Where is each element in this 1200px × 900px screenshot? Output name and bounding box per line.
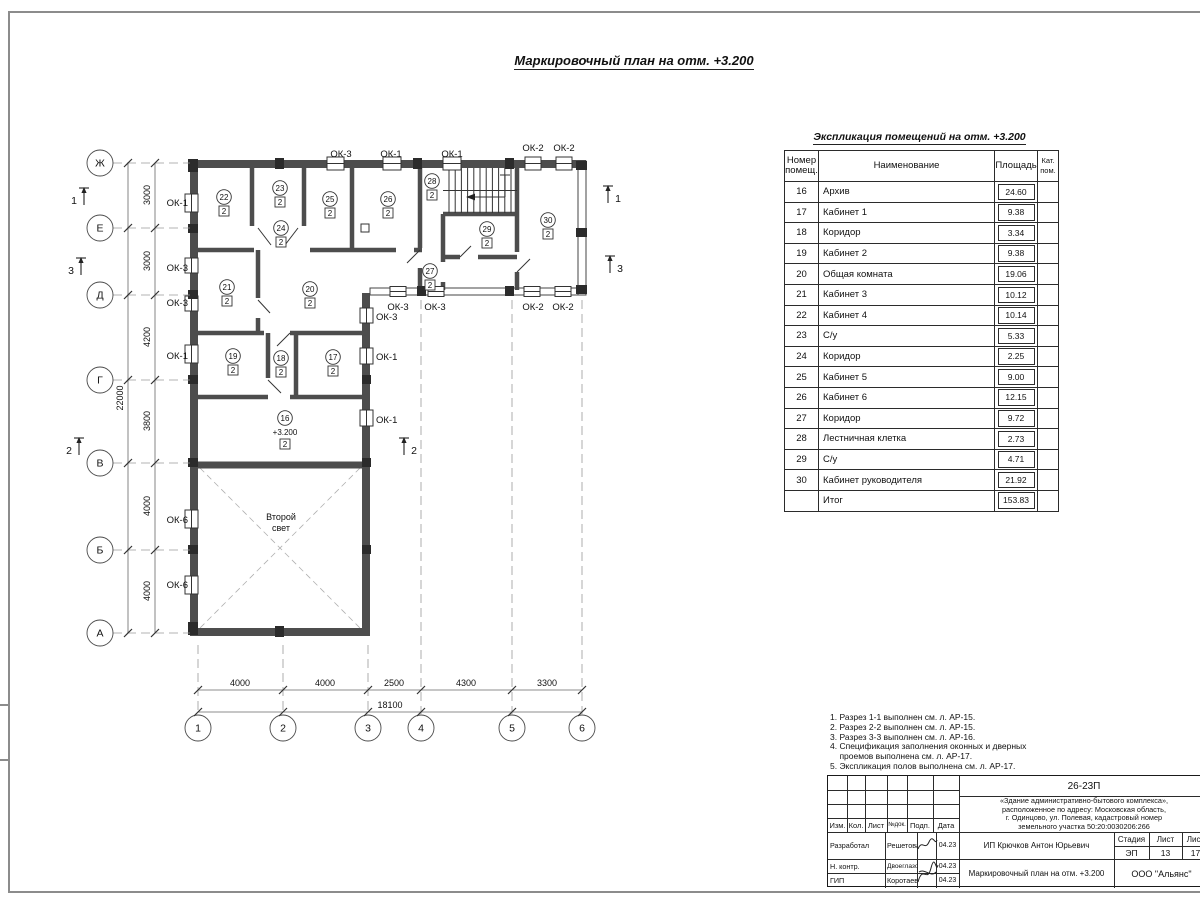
tb-sheet-label: Лист: [1149, 832, 1182, 846]
table-cell: 12.15: [995, 387, 1038, 408]
svg-text:2: 2: [280, 723, 286, 735]
svg-text:ОК-1: ОК-1: [376, 352, 397, 363]
table-cell: 2.73: [995, 429, 1038, 450]
tb-sheet-no: 13: [1149, 846, 1182, 859]
tb-client: ИП Крючков Антон Юрьевич: [959, 832, 1114, 859]
table-cell: 25: [785, 367, 819, 388]
table-cell: Кабинет 1: [819, 202, 995, 223]
svg-text:ОК-1: ОК-1: [167, 198, 188, 209]
svg-text:16: 16: [281, 414, 290, 423]
signature: [916, 836, 938, 854]
tb-project-line: земельного участка 50:20:0030206:266: [959, 823, 1200, 832]
svg-text:4000: 4000: [315, 678, 335, 688]
col-header-num: Номер помещ.: [785, 151, 819, 182]
table-cell: [1038, 223, 1059, 244]
svg-text:Е: Е: [96, 223, 103, 235]
notes-block: 1. Разрез 1-1 выполнен см. л. АР-15.2. Р…: [830, 713, 1026, 772]
svg-text:3300: 3300: [537, 678, 557, 688]
svg-text:1: 1: [71, 195, 77, 207]
svg-text:ОК-3: ОК-3: [376, 312, 397, 323]
svg-text:19: 19: [229, 352, 238, 361]
table-cell: 26: [785, 387, 819, 408]
tb-col-data: Дата: [933, 818, 959, 832]
table-cell: Кабинет руководителя: [819, 470, 995, 491]
table-cell: 9.72: [995, 408, 1038, 429]
table-row: 26Кабинет 612.15: [785, 387, 1059, 408]
table-cell: 24.60: [995, 182, 1038, 203]
tb-col-podp: Подп.: [907, 818, 933, 832]
tb-role-2: ГИП: [830, 873, 885, 888]
table-cell: [785, 490, 819, 511]
table-cell: 17: [785, 202, 819, 223]
tb-name-0: Решетова: [887, 832, 917, 859]
table-cell: С/у: [819, 326, 995, 347]
table-cell: Кабинет 4: [819, 305, 995, 326]
table-cell: [1038, 408, 1059, 429]
table-cell: 18: [785, 223, 819, 244]
table-cell: 16: [785, 182, 819, 203]
svg-text:2: 2: [430, 191, 435, 200]
table-cell: Кабинет 6: [819, 387, 995, 408]
table-row: 28Лестничная клетка2.73: [785, 429, 1059, 450]
svg-text:2: 2: [308, 299, 313, 308]
svg-text:27: 27: [426, 267, 435, 276]
svg-text:2: 2: [331, 367, 336, 376]
svg-text:2: 2: [386, 209, 391, 218]
svg-text:2: 2: [225, 297, 230, 306]
svg-text:ОК-1: ОК-1: [376, 415, 397, 426]
table-cell: 28: [785, 429, 819, 450]
table-cell: 153.83: [995, 490, 1038, 511]
svg-text:3: 3: [365, 723, 371, 735]
svg-text:ОК-1: ОК-1: [441, 149, 462, 160]
svg-text:2: 2: [279, 368, 284, 377]
explication-body: 16Архив24.6017Кабинет 19.3818Коридор3.34…: [785, 182, 1059, 512]
table-row: 21Кабинет 310.12: [785, 284, 1059, 305]
svg-text:29: 29: [483, 225, 492, 234]
svg-text:ОК-3: ОК-3: [330, 149, 351, 160]
svg-text:ОК-3: ОК-3: [167, 298, 188, 309]
svg-text:2: 2: [546, 230, 551, 239]
svg-text:18: 18: [277, 354, 286, 363]
svg-text:28: 28: [428, 177, 437, 186]
table-cell: Архив: [819, 182, 995, 203]
svg-text:А: А: [96, 628, 103, 640]
svg-text:ОК-2: ОК-2: [522, 143, 543, 154]
svg-text:2: 2: [283, 440, 288, 449]
signature: [915, 860, 939, 887]
table-cell: 10.14: [995, 305, 1038, 326]
svg-text:2: 2: [279, 238, 284, 247]
svg-text:2: 2: [231, 366, 236, 375]
tb-date-0: 04.23: [936, 832, 959, 859]
col-header-area: Площадь: [995, 151, 1038, 182]
svg-text:17: 17: [329, 353, 338, 362]
svg-text:24: 24: [277, 224, 286, 233]
plan-annotations: ЖЕДГВБА123456300030004200380040004000220…: [66, 143, 623, 741]
col-header-cat: Кат. пом.: [1038, 151, 1059, 182]
explication-title: Экспликация помещений на отм. +3.200: [784, 131, 1055, 143]
svg-text:2500: 2500: [384, 678, 404, 688]
table-cell: 4.71: [995, 449, 1038, 470]
table-cell: 9.38: [995, 243, 1038, 264]
svg-text:4: 4: [418, 723, 424, 735]
table-cell: [1038, 346, 1059, 367]
table-cell: 5.33: [995, 326, 1038, 347]
svg-text:2: 2: [485, 239, 490, 248]
table-cell: Коридор: [819, 223, 995, 244]
tb-role-0: Разработал: [830, 832, 885, 859]
tb-col-ndok: №док.: [887, 818, 907, 832]
svg-text:ОК-2: ОК-2: [553, 143, 574, 154]
svg-text:ОК-2: ОК-2: [552, 302, 573, 313]
table-cell: [1038, 182, 1059, 203]
svg-text:20: 20: [306, 285, 315, 294]
tb-role-1: Н. контр.: [830, 859, 885, 873]
table-cell: Лестничная клетка: [819, 429, 995, 450]
tb-date-1: 04.23: [936, 859, 959, 873]
svg-text:В: В: [96, 458, 103, 470]
tb-doc-number: 26-23П: [959, 776, 1200, 796]
svg-text:18100: 18100: [377, 700, 402, 710]
table-cell: 9.00: [995, 367, 1038, 388]
table-cell: [1038, 470, 1059, 491]
explication-table: Номер помещ. Наименование Площадь Кат. п…: [784, 150, 1059, 512]
table-cell: 22: [785, 305, 819, 326]
table-cell: [1038, 264, 1059, 285]
table-cell: Кабинет 3: [819, 284, 995, 305]
tb-drawing-title: Маркировочный план на отм. +3.200: [959, 859, 1114, 888]
svg-text:Г: Г: [97, 375, 103, 387]
svg-text:6: 6: [579, 723, 585, 735]
table-cell: [1038, 243, 1059, 264]
tb-col-izm: Изм.: [828, 818, 847, 832]
tb-project: «Здание административно-бытового комплек…: [959, 797, 1200, 832]
table-cell: 19: [785, 243, 819, 264]
table-cell: 9.38: [995, 202, 1038, 223]
svg-text:Д: Д: [96, 290, 103, 302]
svg-text:ОК-3: ОК-3: [424, 302, 445, 313]
svg-text:+3.200: +3.200: [273, 428, 298, 437]
table-cell: 10.12: [995, 284, 1038, 305]
svg-text:3800: 3800: [142, 411, 152, 431]
svg-text:25: 25: [326, 195, 335, 204]
table-cell: [1038, 367, 1059, 388]
col-header-name: Наименование: [819, 151, 995, 182]
table-cell: Итог: [819, 490, 995, 511]
table-cell: [1038, 202, 1059, 223]
tb-name-1: Двоеглазов: [887, 859, 917, 873]
table-cell: 2.25: [995, 346, 1038, 367]
table-row: 16Архив24.60: [785, 182, 1059, 203]
tb-stage: ЭП: [1114, 846, 1149, 859]
table-row: 22Кабинет 410.14: [785, 305, 1059, 326]
drawing-sheet: { "sheet_title": "Маркировочный план на …: [0, 0, 1200, 900]
tb-col-list: Лист: [865, 818, 887, 832]
table-cell: 23: [785, 326, 819, 347]
svg-text:4000: 4000: [142, 581, 152, 601]
table-cell: 21.92: [995, 470, 1038, 491]
explication: Номер помещ. Наименование Площадь Кат. п…: [784, 150, 1059, 512]
svg-text:4000: 4000: [142, 496, 152, 516]
table-cell: [1038, 326, 1059, 347]
table-cell: [1038, 449, 1059, 470]
table-cell: [1038, 305, 1059, 326]
table-cell: 30: [785, 470, 819, 491]
staircase: [443, 168, 517, 213]
svg-text:2: 2: [278, 198, 283, 207]
svg-text:2: 2: [428, 281, 433, 290]
svg-text:2: 2: [66, 445, 72, 457]
tb-name-2: Коротаев: [887, 873, 917, 888]
svg-text:ОК-3: ОК-3: [167, 263, 188, 274]
title-block: Изм. Кол. Лист №док. Подп. Дата Разработ…: [827, 775, 1200, 887]
table-row: 23С/у5.33: [785, 326, 1059, 347]
tb-company: ООО "Альянс": [1114, 859, 1200, 888]
svg-text:свет: свет: [272, 523, 290, 533]
svg-text:4000: 4000: [230, 678, 250, 688]
table-cell: Коридор: [819, 408, 995, 429]
table-cell: 21: [785, 284, 819, 305]
void-diagonals: [200, 468, 360, 628]
svg-text:22: 22: [220, 193, 229, 202]
walls: [188, 160, 586, 636]
table-row: 25Кабинет 59.00: [785, 367, 1059, 388]
svg-text:22000: 22000: [115, 385, 125, 410]
note-line: 5. Экспликация полов выполнена см. л. АР…: [830, 762, 1026, 772]
table-row: 17Кабинет 19.38: [785, 202, 1059, 223]
tb-sheets-label: Лист: [1182, 832, 1200, 846]
tb-sheets-total: 17: [1182, 846, 1200, 859]
table-cell: 29: [785, 449, 819, 470]
table-row: 27Коридор9.72: [785, 408, 1059, 429]
svg-text:ОК-6: ОК-6: [167, 515, 188, 526]
svg-text:Ж: Ж: [95, 158, 105, 170]
svg-text:3: 3: [617, 263, 623, 275]
svg-text:ОК-1: ОК-1: [380, 149, 401, 160]
svg-text:3000: 3000: [142, 185, 152, 205]
svg-text:26: 26: [384, 195, 393, 204]
table-cell: [1038, 284, 1059, 305]
svg-text:2: 2: [328, 209, 333, 218]
svg-text:4200: 4200: [142, 327, 152, 347]
svg-text:3000: 3000: [142, 251, 152, 271]
table-row: 18Коридор3.34: [785, 223, 1059, 244]
svg-text:30: 30: [544, 216, 553, 225]
table-cell: С/у: [819, 449, 995, 470]
table-row: 20Общая комната19.06: [785, 264, 1059, 285]
table-cell: 20: [785, 264, 819, 285]
explication-header-row: Номер помещ. Наименование Площадь Кат. п…: [785, 151, 1059, 182]
table-row: 30Кабинет руководителя21.92: [785, 470, 1059, 491]
table-cell: 24: [785, 346, 819, 367]
table-row: 24Коридор2.25: [785, 346, 1059, 367]
table-cell: [1038, 429, 1059, 450]
svg-text:23: 23: [276, 184, 285, 193]
svg-text:ОК-2: ОК-2: [522, 302, 543, 313]
svg-text:3: 3: [68, 265, 74, 277]
table-cell: 3.34: [995, 223, 1038, 244]
table-row: 19Кабинет 29.38: [785, 243, 1059, 264]
table-cell: 27: [785, 408, 819, 429]
table-cell: [1038, 387, 1059, 408]
svg-text:4300: 4300: [456, 678, 476, 688]
table-cell: [1038, 490, 1059, 511]
svg-text:21: 21: [223, 283, 232, 292]
svg-text:ОК-6: ОК-6: [167, 580, 188, 591]
svg-text:2: 2: [222, 207, 227, 216]
table-row: 29С/у4.71: [785, 449, 1059, 470]
svg-text:ОК-1: ОК-1: [167, 351, 188, 362]
table-cell: Общая комната: [819, 264, 995, 285]
table-cell: Кабинет 2: [819, 243, 995, 264]
table-row: Итог153.83: [785, 490, 1059, 511]
tb-date-2: 04.23: [936, 873, 959, 888]
table-cell: Кабинет 5: [819, 367, 995, 388]
tb-col-kol: Кол.: [847, 818, 865, 832]
table-cell: Коридор: [819, 346, 995, 367]
svg-text:1: 1: [615, 193, 621, 205]
svg-text:2: 2: [411, 445, 417, 457]
svg-text:Второй: Второй: [266, 512, 296, 522]
tb-stage-label: Стадия: [1114, 832, 1149, 846]
table-cell: 19.06: [995, 264, 1038, 285]
svg-text:1: 1: [195, 723, 201, 735]
svg-text:5: 5: [509, 723, 515, 735]
svg-text:Б: Б: [97, 545, 104, 557]
